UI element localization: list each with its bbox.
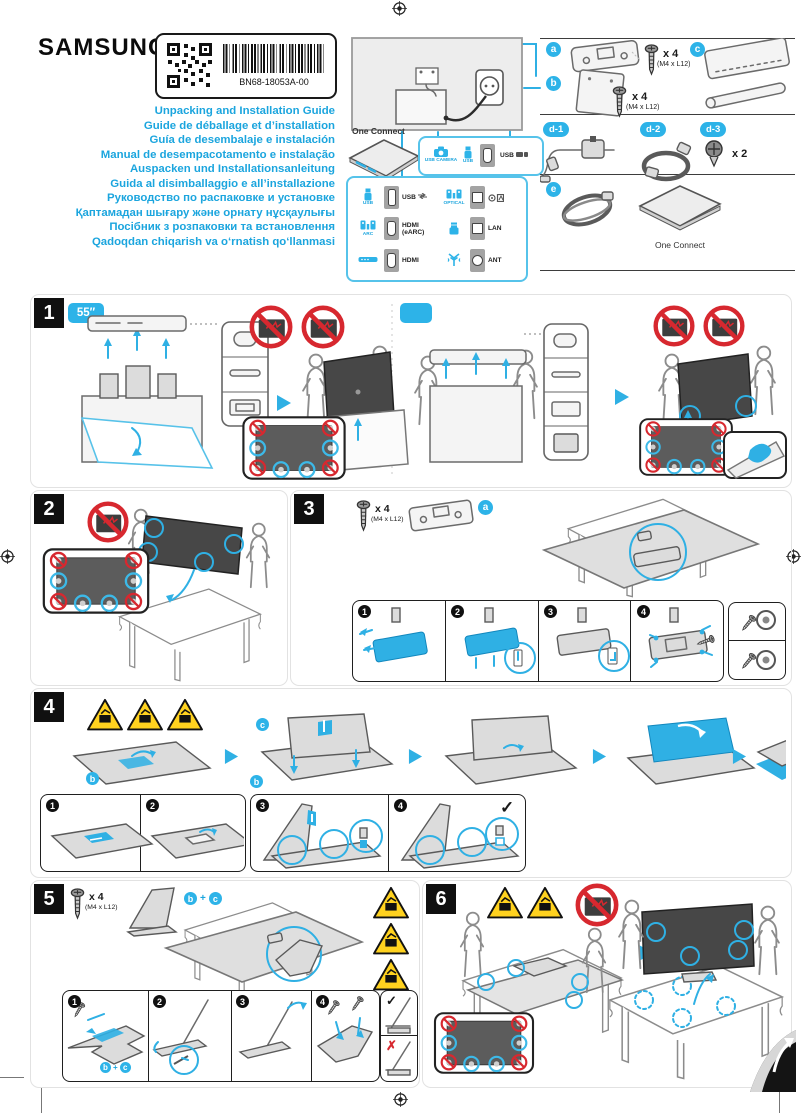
- part-e-one-connect-box: [632, 182, 728, 232]
- step1-insert-stand: [68, 1002, 144, 1064]
- stand-panel-insert: [262, 714, 392, 780]
- part-d1-cable: [540, 136, 642, 184]
- no-drop-corner-icon: [304, 308, 342, 346]
- port-row-lan: LAN: [441, 213, 519, 244]
- latch-flip: [152, 824, 244, 858]
- section-2-illustration: [34, 496, 286, 682]
- registration-mark-left: [0, 549, 15, 564]
- lan-port: [470, 217, 485, 240]
- usb-camera-icon: USB CAMERA: [426, 146, 456, 164]
- step1-combo-label: b + c: [100, 1062, 131, 1073]
- step-2-number: 2: [451, 605, 464, 618]
- latch-locked-detail: [402, 804, 518, 868]
- step-4-number: 4: [394, 799, 407, 812]
- part-b-badge: b: [86, 772, 99, 785]
- step-2-number: 2: [146, 799, 159, 812]
- plus-sign: +: [113, 1063, 118, 1072]
- crop-mark: [41, 1087, 42, 1113]
- screw-icon: [612, 86, 627, 118]
- title-it: Guida al disimballaggio e all’installazi…: [40, 177, 335, 192]
- barcode: [223, 44, 325, 73]
- part-number: BN68-18053A-00: [223, 77, 325, 87]
- port-row-usb: USB USB: [355, 182, 433, 213]
- step-1-number: 1: [358, 605, 371, 618]
- part-e-label: One Connect: [628, 240, 732, 250]
- no-press-screen-icon: [656, 308, 693, 345]
- port-row-hdmi: HDMI: [355, 245, 433, 276]
- port-row-ant: ANT: [441, 245, 519, 276]
- screw-icon: [70, 888, 85, 920]
- part-d2-badge: d-2: [640, 122, 666, 137]
- title-ru: Руководство по распаковке и установке: [40, 191, 335, 206]
- warning-tipover-icon: [372, 886, 410, 920]
- title-kk: Қаптамадан шығару және орнату нұсқаулығы: [40, 206, 335, 221]
- screw-icon: [356, 500, 371, 532]
- next-step-arrow: [277, 395, 291, 411]
- usb-stick-icon: USB: [461, 146, 475, 165]
- next-step-arrow: [409, 749, 422, 764]
- section-3-steps-art: [352, 600, 722, 680]
- grip-points-panel: [44, 549, 148, 612]
- part-b-badge: b: [100, 1062, 111, 1073]
- qr-code: [166, 42, 213, 89]
- hdmi-port: [384, 249, 399, 272]
- step4-fasten-screws: [649, 608, 715, 667]
- part-c-stand: [702, 38, 794, 112]
- usb-port: [480, 144, 495, 167]
- section-3-qty: x 4: [375, 503, 390, 515]
- section-4-steps-b-art: [250, 794, 524, 870]
- section-4-assembly-sequence: [56, 712, 786, 790]
- screw-icon: [644, 44, 659, 76]
- antenna-icon: [441, 253, 467, 267]
- section-3-number: 3: [294, 494, 324, 524]
- part-a-qty: x 4: [663, 48, 678, 60]
- page-turn-icon: [744, 1028, 796, 1092]
- parts-rule: [540, 270, 795, 271]
- product-label-box: BN68-18053A-00: [155, 33, 337, 99]
- person-left: [303, 355, 327, 423]
- step-3-number: 3: [544, 605, 557, 618]
- port-row-hdmi-earc: ARC HDMI (eARC): [355, 213, 433, 244]
- one-connect-label-top: One Connect: [352, 126, 405, 136]
- part-c-badge: c: [120, 1062, 131, 1073]
- section-5-qty: x 4: [89, 891, 104, 903]
- optical-speakers-icon: OPTICAL: [441, 189, 467, 207]
- title-uk: Посібник з розпаковки та встановлення: [40, 220, 335, 235]
- step-4-number: 4: [637, 605, 650, 618]
- step3-rotate-up: [240, 1002, 307, 1058]
- step-3-number: 3: [236, 995, 249, 1008]
- part-b-qty: x 4: [632, 91, 647, 103]
- latch-highlight: [52, 824, 152, 858]
- section-4-steps-a-art: [40, 794, 244, 870]
- lan-label: LAN: [488, 225, 502, 232]
- one-connect-ports-panel: USB USB OPTICAL ARC HDMI: [346, 176, 528, 282]
- step-3-number: 3: [256, 799, 269, 812]
- person-right: [247, 524, 269, 588]
- installation-guide-page: SAMSUNG BN68-18053A-00 Unpacking and Ins…: [0, 0, 802, 1116]
- soundbar-icon: [355, 256, 381, 264]
- step-1-number: 1: [68, 995, 81, 1008]
- registration-mark-bottom: [393, 1092, 408, 1107]
- section-5-number: 5: [34, 884, 64, 914]
- next-step-arrow: [225, 749, 238, 764]
- tv-upright: [642, 904, 754, 974]
- ant-port: [470, 249, 485, 272]
- grip-points-panel: [640, 419, 732, 475]
- title-en: Unpacking and Installation Guide: [40, 104, 335, 119]
- part-d3-qty: x 2: [732, 148, 747, 160]
- title-pt: Manual de desempacotamento e instalação: [40, 148, 335, 163]
- section-1-illustration: [62, 300, 788, 482]
- title-uz: Qadoqdan chiqarish va o‘rnatish qo‘llanm…: [40, 235, 335, 250]
- port-row-optical: OPTICAL: [441, 182, 519, 213]
- step2-slide-bracket: [465, 608, 535, 673]
- registration-mark-top: [392, 1, 407, 16]
- part-d1-badge: d-1: [543, 122, 569, 137]
- crop-mark: [0, 1077, 24, 1078]
- step-2-number: 2: [153, 995, 166, 1008]
- no-press-screen-icon: [90, 504, 127, 541]
- step-1-number: 1: [46, 799, 59, 812]
- stand-panel-seated: [446, 716, 576, 784]
- warning-pinch-icon: [372, 922, 410, 956]
- usb-port-label: USB: [500, 151, 528, 159]
- part-d3-screw: [702, 140, 726, 168]
- warning-two-person-icon: [372, 958, 410, 992]
- title-de: Auspacken und Installationsanleitung: [40, 162, 335, 177]
- section-5-table-scene: [126, 898, 384, 994]
- person-right: [751, 347, 775, 415]
- next-step-arrow: [615, 389, 629, 405]
- samsung-logo: SAMSUNG: [38, 34, 168, 62]
- part-b-spec: (M4 x L12): [626, 104, 659, 111]
- stand-folded-flat: [756, 728, 786, 780]
- grip-points-panel: [435, 1013, 533, 1072]
- title-list: Unpacking and Installation Guide Guide d…: [40, 104, 335, 249]
- step2-hook-edge: [154, 1000, 208, 1074]
- step3-check-hook: [557, 608, 629, 671]
- part-b-badge: b: [250, 775, 263, 788]
- usb-port-label: USB: [402, 193, 427, 201]
- next-step-arrow: [593, 749, 606, 764]
- part-d3-badge: d-3: [700, 122, 726, 137]
- title-fr: Guide de déballage et d’installation: [40, 119, 335, 134]
- usb-camera-panel: USB CAMERA USB USB: [418, 136, 544, 176]
- part-c-badge: c: [256, 718, 269, 731]
- part-e-cable-coil: [558, 188, 616, 232]
- grip-points-panel: [243, 417, 344, 478]
- part-a-badge: a: [546, 42, 561, 57]
- ant-label: ANT: [488, 257, 502, 264]
- usb-port: [384, 186, 399, 209]
- lan-plug-icon: [441, 222, 467, 236]
- camera-glyph: [516, 151, 528, 157]
- hdmi-earc-port: [384, 217, 399, 240]
- title-es: Guía de desembalaje e instalación: [40, 133, 335, 148]
- hdmi-earc-label: HDMI (eARC): [402, 222, 424, 237]
- reversible-arrows-glyph: [418, 193, 427, 199]
- section-3-spec: (M4 x L12): [371, 516, 403, 523]
- section-1-number: 1: [34, 298, 64, 328]
- part-a-spec: (M4 x L12): [657, 61, 690, 68]
- section-3-table-scene: [488, 494, 786, 598]
- person-right: [755, 907, 779, 975]
- screw-angle-detail: [730, 604, 782, 676]
- part-b-badge: b: [546, 76, 561, 91]
- hdmi-label: HDMI: [402, 257, 419, 264]
- audio-out-icons: [488, 194, 504, 202]
- usb-stick-icon: USB: [355, 188, 381, 207]
- step-4-number: 4: [316, 995, 329, 1008]
- part-d2-cable-loop: [636, 136, 700, 184]
- person-left: [461, 913, 483, 977]
- section-5-spec: (M4 x L12): [85, 904, 117, 911]
- part-a-bracket: [406, 496, 476, 534]
- optical-port: [470, 186, 485, 209]
- press-down-detail: [264, 804, 382, 868]
- arc-speakers-icon: ARC: [355, 220, 381, 238]
- no-drop-corner-icon: [706, 308, 743, 345]
- person-left: [619, 901, 643, 969]
- step1-place-bracket: [360, 608, 428, 662]
- check-detail-art: [382, 992, 414, 1078]
